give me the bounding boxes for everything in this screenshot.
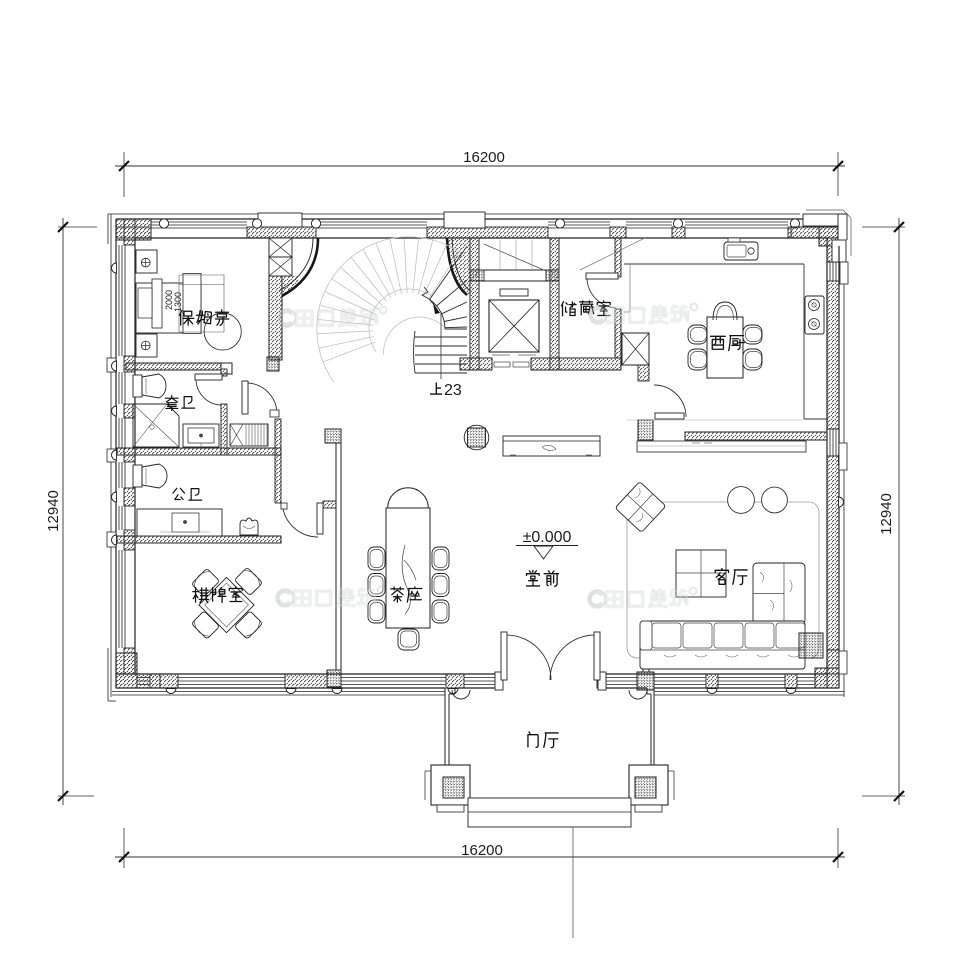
svg-text:±0.000: ±0.000 — [523, 529, 572, 546]
svg-text:12940: 12940 — [45, 490, 62, 532]
svg-text:1300: 1300 — [173, 292, 183, 312]
svg-text:12940: 12940 — [878, 493, 895, 535]
svg-text:16200: 16200 — [461, 842, 503, 859]
svg-text:16200: 16200 — [463, 149, 505, 166]
svg-text:23: 23 — [444, 382, 462, 399]
